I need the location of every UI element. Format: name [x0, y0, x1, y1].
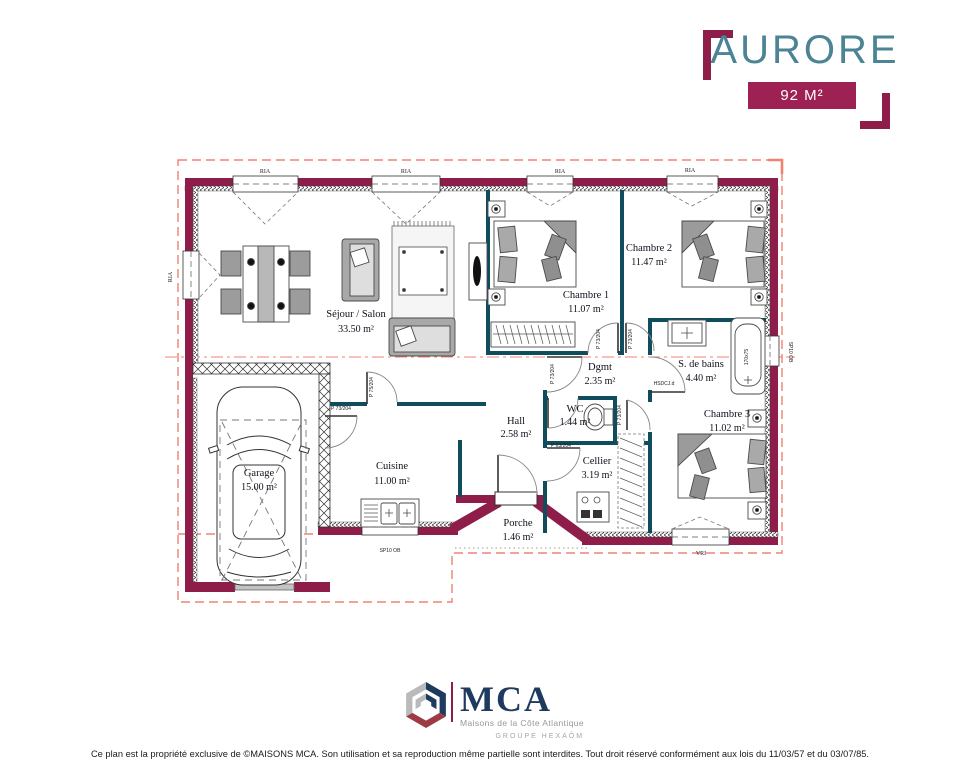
- room-area-cuisine: 11.00 m²: [374, 476, 409, 487]
- door-label-chambre2: P 73/204: [628, 329, 634, 349]
- bed-chambre-3: [678, 434, 766, 500]
- bed-chambre-2: [682, 221, 765, 287]
- floor-plan-svg: Séjour / Salon 33.50 m² Chambre 1 11.07 …: [0, 0, 960, 768]
- door-label-chambre3: P 73/204: [617, 405, 623, 425]
- bathtub-size-label: 170x75: [744, 349, 750, 366]
- room-area-dgmt: 2.35 m²: [585, 376, 616, 387]
- room-area-chambre2: 11.47 m²: [631, 257, 666, 268]
- room-label-hall: Hall: [507, 416, 525, 427]
- dining-table-set: [221, 246, 310, 322]
- window-sejour-2: [372, 176, 440, 224]
- room-area-hall: 2.58 m²: [501, 429, 532, 440]
- sofa-horizontal: [389, 318, 455, 356]
- rug: [392, 221, 454, 331]
- window-label-vri: VRI: [696, 551, 706, 557]
- door-label-bath: HSDCJ.d: [654, 381, 675, 387]
- room-label-wc: WC: [567, 404, 584, 415]
- room-label-dgmt: Dgmt: [588, 362, 612, 373]
- logo-subtitle: Maisons de la Côte Atlantique: [460, 718, 584, 728]
- window-label-sp10-kitchen: SP10 OB: [380, 548, 402, 554]
- room-area-chambre1: 11.07 m²: [568, 304, 603, 315]
- wardrobe-chambre-1: [491, 322, 575, 347]
- room-area-porche: 1.46 m²: [503, 532, 534, 543]
- copyright-notice: Ce plan est la propriété exclusive de ©M…: [0, 749, 960, 759]
- bath-sink: [668, 320, 706, 346]
- logo-group-name: GROUPE HEXAÔM: [495, 733, 584, 740]
- floor-plan-page: AURORE 92 M²: [0, 0, 960, 768]
- room-area-sejour: 33.50 m²: [338, 324, 374, 335]
- window-label-ria-4: RIA: [685, 168, 696, 174]
- door-label-garage: P 73/204: [331, 406, 351, 412]
- logo-acronym: MCA: [460, 682, 552, 716]
- mca-logo: MCA Maisons de la Côte Atlantique GROUPE…: [406, 682, 584, 744]
- kitchen-sink: [361, 499, 419, 527]
- overhang-corner-bracket: [768, 160, 782, 174]
- door-label-cellier: P 63/204: [551, 443, 571, 449]
- room-area-sdb: 4.40 m²: [686, 373, 717, 384]
- logo-divider: [451, 682, 453, 722]
- cellier-closet: [618, 434, 644, 528]
- window-sejour-1: [233, 176, 298, 224]
- room-label-garage: Garage: [244, 468, 275, 479]
- room-label-chambre2: Chambre 2: [626, 243, 672, 254]
- room-label-sejour: Séjour / Salon: [326, 309, 386, 320]
- mca-hexagon-logo-icon: [406, 682, 446, 728]
- window-label-ria-3: RIA: [555, 169, 566, 175]
- tv-icon: [473, 256, 481, 286]
- room-label-chambre1: Chambre 1: [563, 290, 609, 301]
- window-sejour-left: [183, 251, 220, 299]
- window-label-ria-2: RIA: [401, 169, 412, 175]
- tv-unit: [469, 243, 487, 300]
- window-chambre3: [672, 517, 729, 545]
- sofa-vertical: [342, 239, 379, 301]
- room-area-chambre3: 11.02 m²: [709, 423, 744, 434]
- room-label-chambre3: Chambre 3: [704, 409, 750, 420]
- window-label-sp10-bath: SP10 OB: [787, 342, 793, 364]
- room-area-cellier: 3.19 m²: [582, 470, 613, 481]
- window-label-ria-left: RIA: [168, 271, 174, 282]
- window-chambre1: [527, 176, 573, 206]
- room-area-wc: 1.44 m²: [560, 417, 591, 428]
- room-label-porche: Porche: [503, 518, 532, 529]
- bed-chambre-1: [494, 221, 576, 287]
- front-door: [495, 455, 537, 505]
- door-label-cuisine: P 75/204: [369, 377, 375, 397]
- window-chambre2: [667, 176, 718, 206]
- room-label-cuisine: Cuisine: [376, 461, 408, 472]
- room-label-cellier: Cellier: [583, 456, 612, 467]
- room-label-sdb: S. de bains: [678, 359, 724, 370]
- cellier-appliance: [577, 492, 609, 522]
- door-label-dgmt: P 73/204: [550, 364, 556, 384]
- door-label-chambre1: P 73/204: [596, 329, 602, 349]
- window-label-ria-1: RIA: [260, 169, 271, 175]
- room-area-garage: 15.00 m²: [241, 482, 277, 493]
